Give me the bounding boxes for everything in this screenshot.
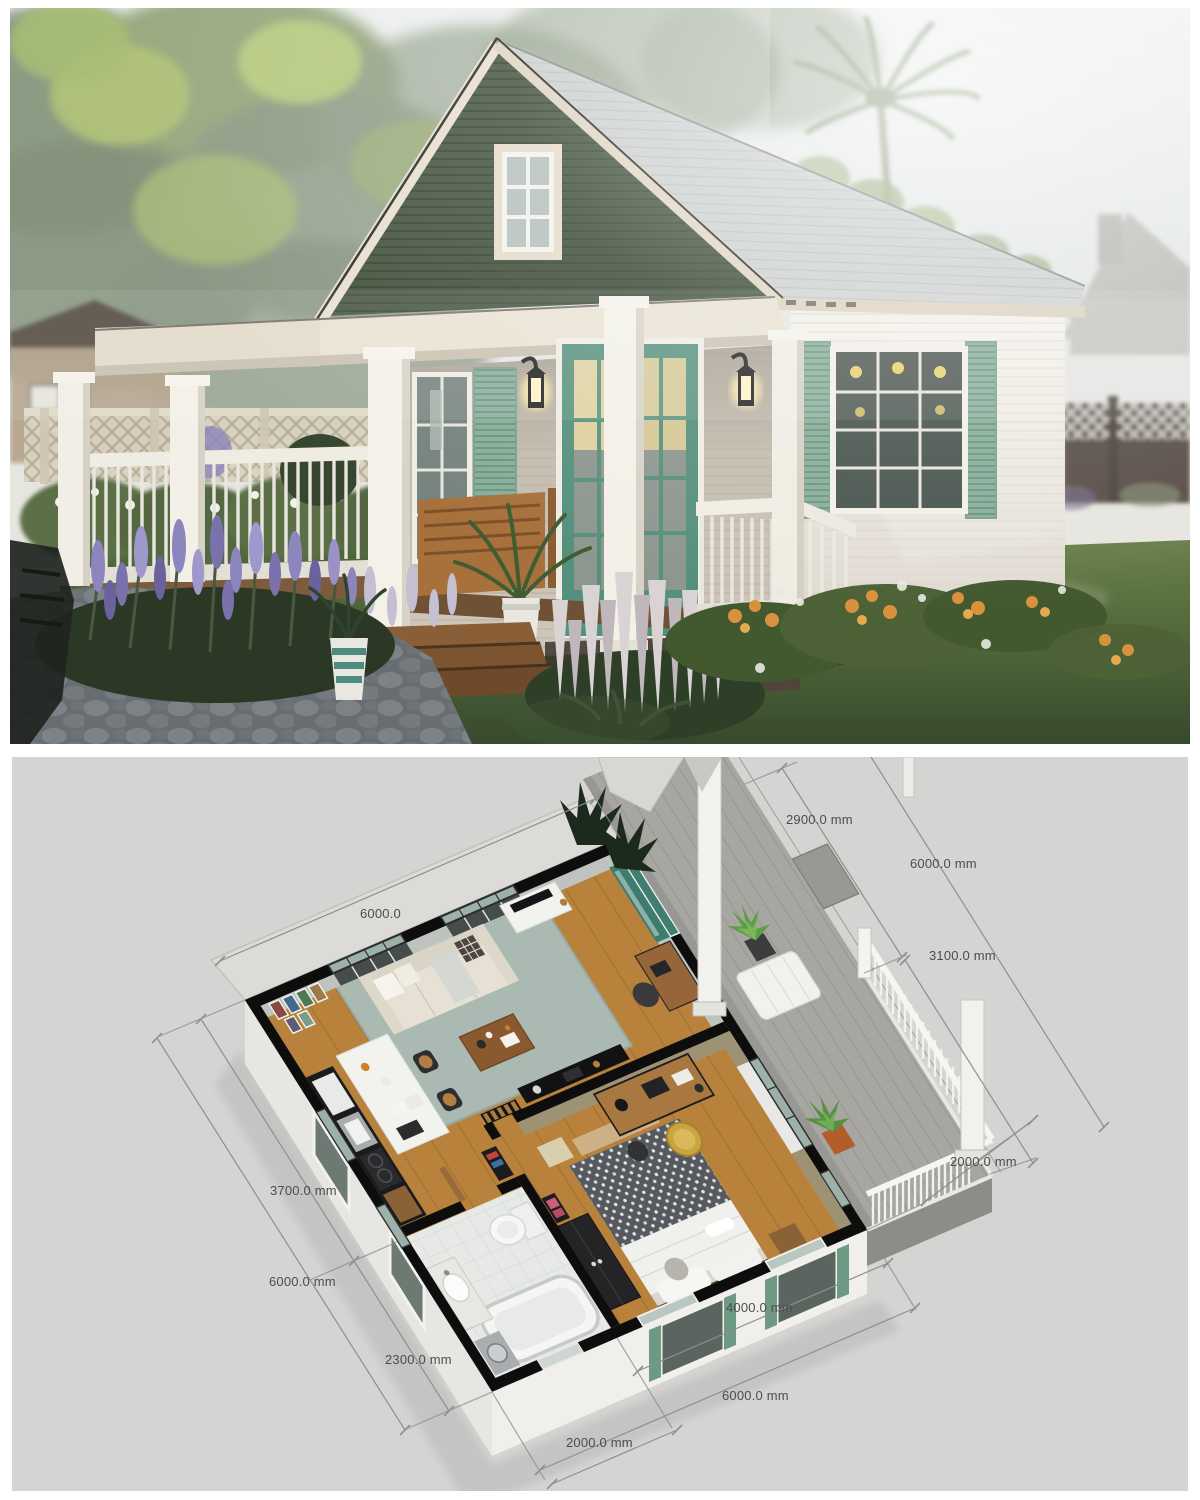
floor-plan-panel — [12, 757, 1188, 1491]
porch-post-a — [693, 757, 726, 1016]
dim-label-2000-deck: 2000.0 mm — [950, 1154, 1017, 1169]
dim-label-2900: 2900.0 mm — [786, 812, 853, 827]
dim-label-6000-nw: 6000.0 — [360, 906, 401, 921]
exterior-render-panel — [10, 8, 1190, 744]
dim-label-3700: 3700.0 mm — [270, 1183, 337, 1198]
fog-band — [10, 290, 1190, 420]
dim-label-6000-sw: 6000.0 mm — [269, 1274, 336, 1289]
dim-label-3100: 3100.0 mm — [929, 948, 996, 963]
dim-label-2000-bottom: 2000.0 mm — [566, 1435, 633, 1450]
dim-label-4000: 4000.0 mm — [726, 1300, 793, 1315]
page: 2900.0 mm 6000.0 mm 3100.0 mm 6000.0 200… — [0, 0, 1200, 1500]
exterior-render-illustration — [10, 8, 1190, 744]
floor-plan-illustration — [12, 757, 1188, 1491]
dim-label-2300: 2300.0 mm — [385, 1352, 452, 1367]
dim-label-6000-ne: 6000.0 mm — [910, 856, 977, 871]
dim-label-6000-se: 6000.0 mm — [722, 1388, 789, 1403]
